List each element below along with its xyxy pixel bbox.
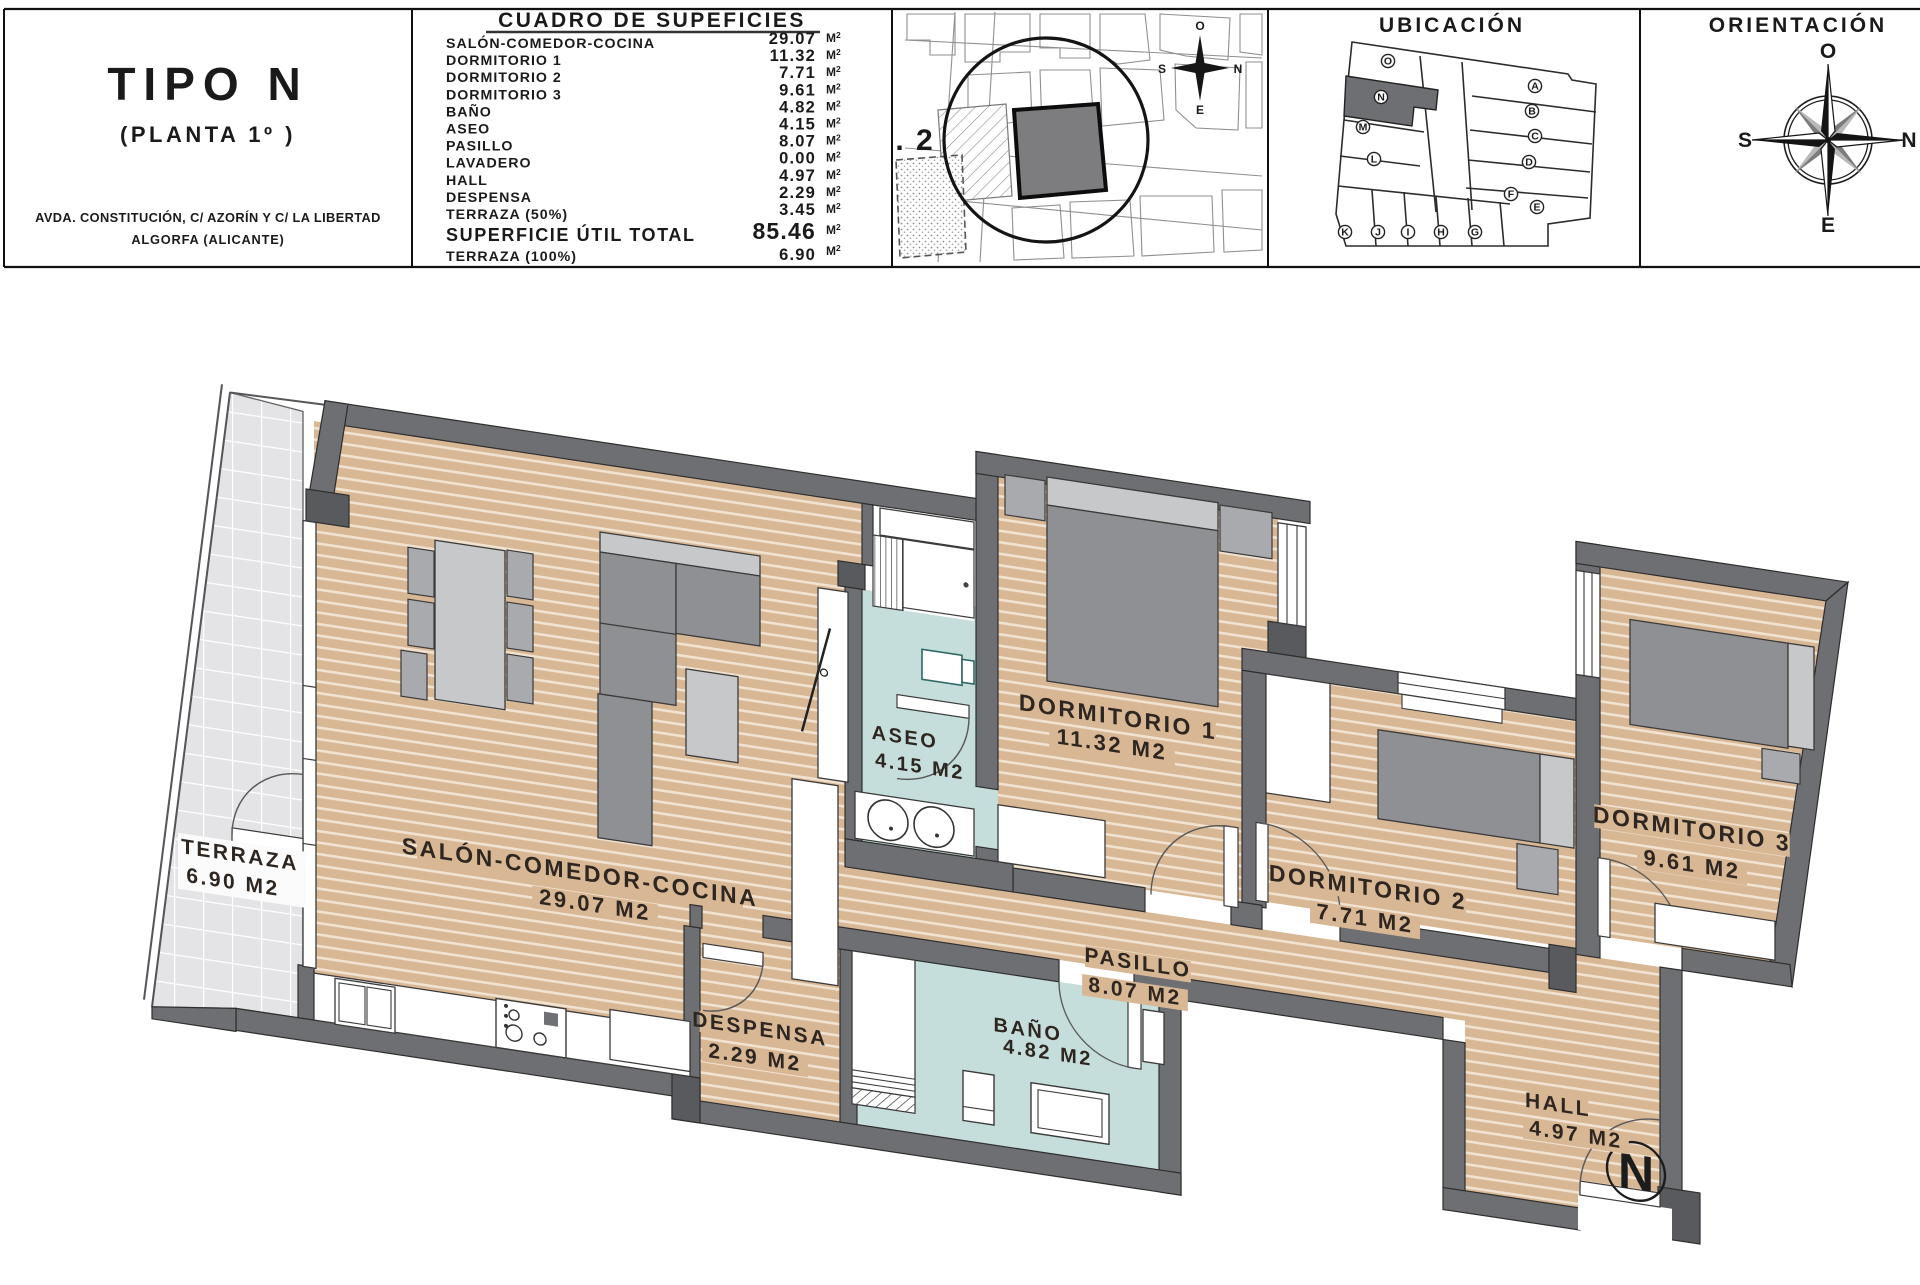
svg-text:ALGORFA (ALICANTE): ALGORFA (ALICANTE) — [131, 232, 284, 247]
svg-text:E: E — [1821, 214, 1835, 237]
svg-text:BAÑO: BAÑO — [446, 102, 492, 120]
svg-text:C: C — [1531, 131, 1539, 143]
svg-text:ASEO: ASEO — [446, 122, 490, 138]
svg-text:SALÓN-COMEDOR-COCINA: SALÓN-COMEDOR-COCINA — [446, 34, 655, 52]
svg-text:6.90: 6.90 — [779, 246, 816, 264]
svg-text:TERRAZA (50%): TERRAZA (50%) — [446, 207, 568, 223]
svg-text:9.61: 9.61 — [779, 81, 816, 99]
svg-text:N: N — [1901, 129, 1916, 152]
svg-text:7.71: 7.71 — [779, 64, 816, 82]
svg-text:I: I — [1407, 227, 1410, 239]
svg-text:S: S — [1738, 129, 1752, 152]
svg-text:G: G — [1471, 227, 1479, 239]
svg-text:O: O — [1384, 56, 1392, 68]
svg-text:TIPO N: TIPO N — [107, 58, 308, 110]
svg-text:PASILLO: PASILLO — [446, 139, 513, 155]
svg-text:29.07: 29.07 — [769, 30, 816, 48]
svg-text:K: K — [1341, 227, 1349, 239]
svg-text:HALL: HALL — [446, 173, 488, 189]
svg-text:CUADRO DE SUPEFICIES: CUADRO DE SUPEFICIES — [498, 9, 806, 32]
svg-text:. 2: . 2 — [895, 124, 934, 157]
svg-text:85.46: 85.46 — [752, 218, 816, 244]
svg-text:(PLANTA 1º ): (PLANTA 1º ) — [120, 122, 296, 147]
svg-text:B: B — [1528, 106, 1536, 118]
svg-text:A: A — [1531, 81, 1539, 93]
svg-text:S: S — [1158, 62, 1166, 76]
svg-text:AVDA. CONSTITUCIÓN, C/ AZORÍN: AVDA. CONSTITUCIÓN, C/ AZORÍN Y C/ LA LI… — [35, 210, 381, 225]
svg-text:DORMITORIO 3: DORMITORIO 3 — [446, 87, 562, 103]
svg-text:4.15: 4.15 — [779, 116, 816, 134]
svg-text:11.32: 11.32 — [770, 47, 816, 65]
svg-text:ORIENTACIÓN: ORIENTACIÓN — [1709, 13, 1887, 37]
svg-text:J: J — [1375, 227, 1381, 239]
svg-text:DESPENSA: DESPENSA — [446, 190, 532, 206]
svg-text:8.07: 8.07 — [779, 133, 816, 151]
svg-text:LAVADERO: LAVADERO — [446, 156, 532, 172]
svg-text:O: O — [1195, 19, 1204, 33]
svg-text:3.45: 3.45 — [779, 201, 816, 219]
svg-text:D: D — [1525, 157, 1533, 169]
svg-text:N: N — [1377, 92, 1385, 104]
svg-text:E: E — [1196, 103, 1204, 117]
svg-text:4.82: 4.82 — [779, 98, 816, 116]
svg-text:0.00: 0.00 — [779, 150, 816, 168]
svg-text:UBICACIÓN: UBICACIÓN — [1379, 13, 1525, 37]
svg-text:TERRAZA (100%): TERRAZA (100%) — [446, 249, 577, 265]
svg-text:N: N — [1234, 62, 1243, 76]
svg-text:F: F — [1508, 189, 1515, 201]
svg-text:O: O — [1820, 40, 1836, 63]
svg-text:H: H — [1437, 227, 1445, 239]
svg-text:4.97: 4.97 — [779, 167, 816, 185]
svg-text:DORMITORIO 2: DORMITORIO 2 — [446, 70, 562, 86]
svg-text:SUPERFICIE ÚTIL TOTAL: SUPERFICIE ÚTIL TOTAL — [446, 224, 696, 245]
svg-text:DORMITORIO 1: DORMITORIO 1 — [446, 53, 562, 69]
svg-text:L: L — [1371, 154, 1378, 166]
svg-text:E: E — [1533, 202, 1540, 214]
svg-text:2.29: 2.29 — [779, 184, 816, 202]
svg-text:M: M — [1359, 122, 1368, 134]
